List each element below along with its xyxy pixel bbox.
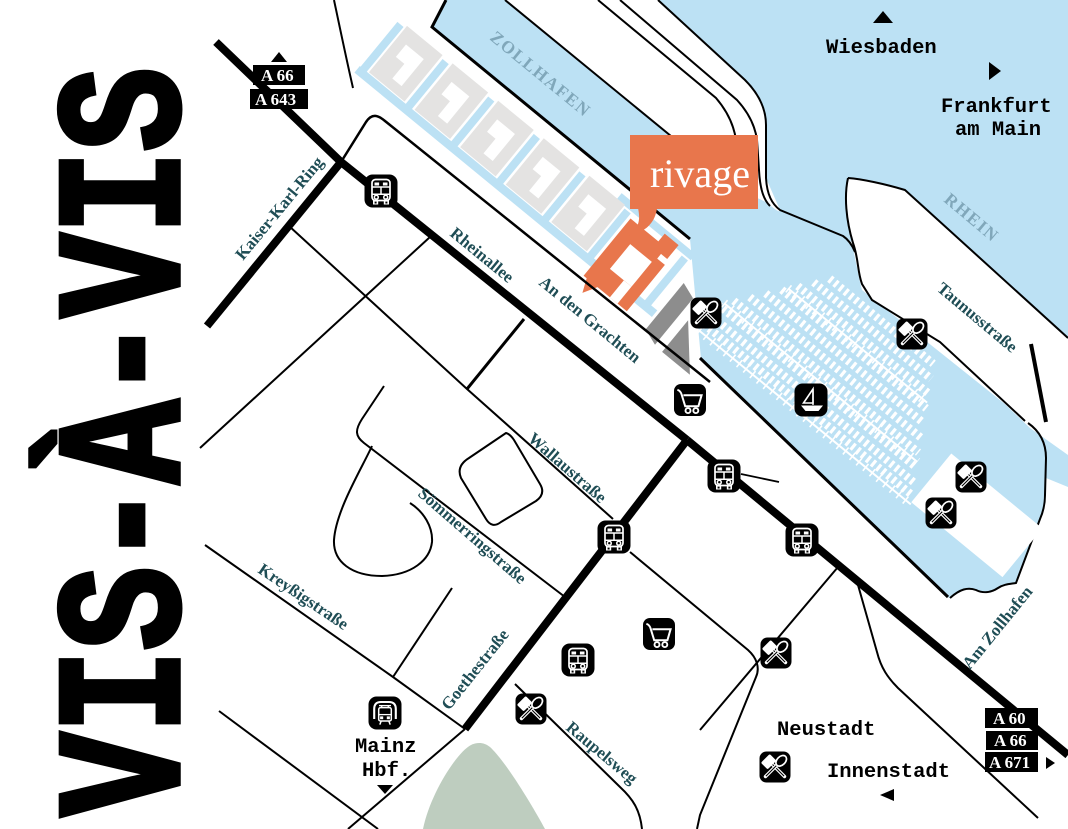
svg-text:A 66: A 66 [261, 66, 294, 85]
svg-text:Neustadt: Neustadt [777, 719, 875, 742]
svg-text:A 643: A 643 [255, 90, 296, 109]
svg-text:VIS-À-VIS: VIS-À-VIS [30, 68, 232, 816]
svg-text:Wiesbaden: Wiesbaden [826, 37, 937, 60]
svg-text:A 60: A 60 [993, 709, 1026, 728]
svg-text:am Main: am Main [955, 119, 1041, 142]
svg-text:Mainz: Mainz [355, 736, 417, 759]
svg-text:rivage: rivage [650, 151, 750, 196]
svg-text:A 671: A 671 [989, 753, 1030, 772]
svg-text:Frankfurt: Frankfurt [941, 96, 1052, 119]
svg-text:A 66: A 66 [994, 731, 1027, 750]
svg-text:Hbf.: Hbf. [362, 760, 411, 783]
svg-text:Innenstadt: Innenstadt [827, 761, 950, 784]
